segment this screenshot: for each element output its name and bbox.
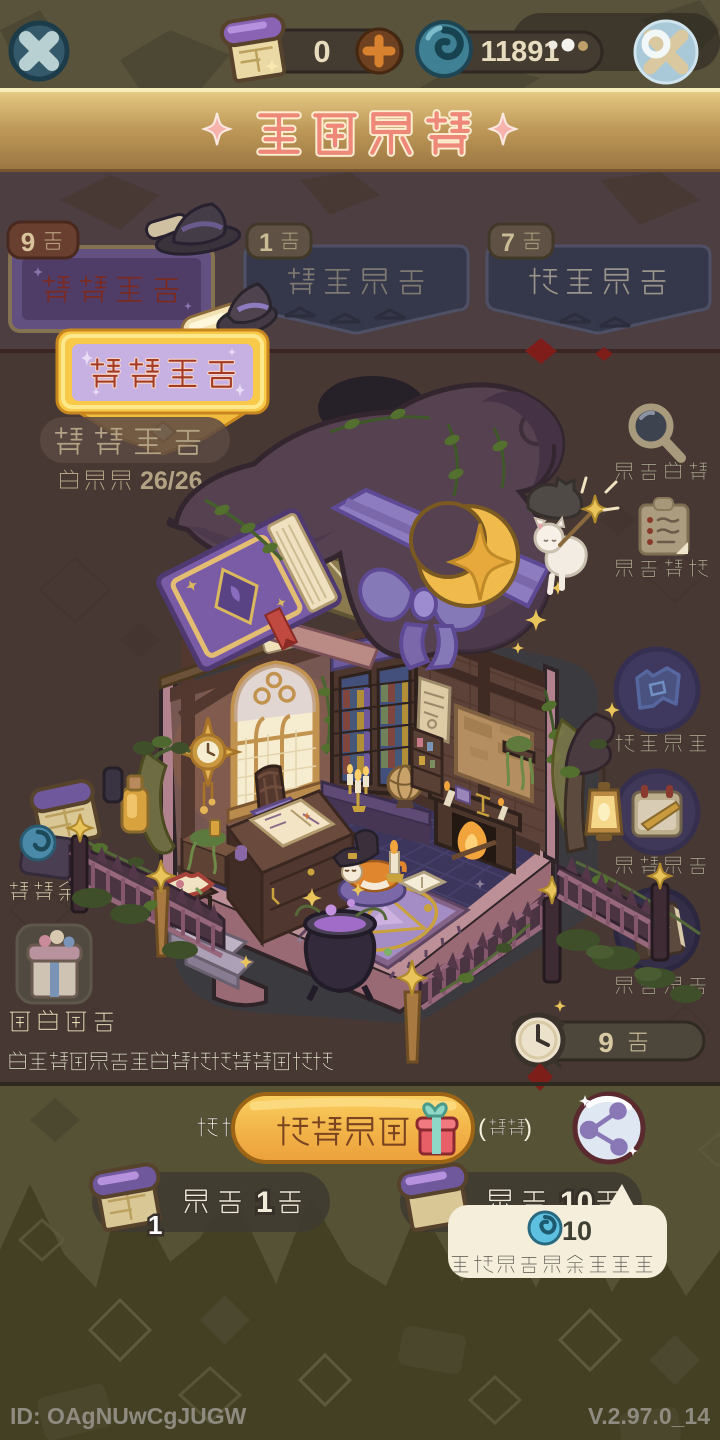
svg-text:11891: 11891 (480, 36, 559, 68)
svg-text:V.2.97.0_14: V.2.97.0_14 (588, 1403, 710, 1429)
svg-text:7: 7 (501, 229, 515, 257)
svg-text:(: ( (478, 1115, 486, 1142)
svg-text:1: 1 (256, 1186, 273, 1219)
svg-text:ID: OAgNUwCgJUGW: ID: OAgNUwCgJUGW (10, 1403, 247, 1429)
svg-text:): ) (524, 1115, 532, 1142)
svg-text:1: 1 (148, 1210, 162, 1240)
svg-text:9: 9 (598, 1027, 614, 1058)
svg-text:0: 0 (313, 34, 330, 69)
svg-text:10: 10 (562, 1216, 592, 1246)
svg-text:9: 9 (21, 227, 35, 257)
svg-text:1: 1 (259, 229, 273, 257)
